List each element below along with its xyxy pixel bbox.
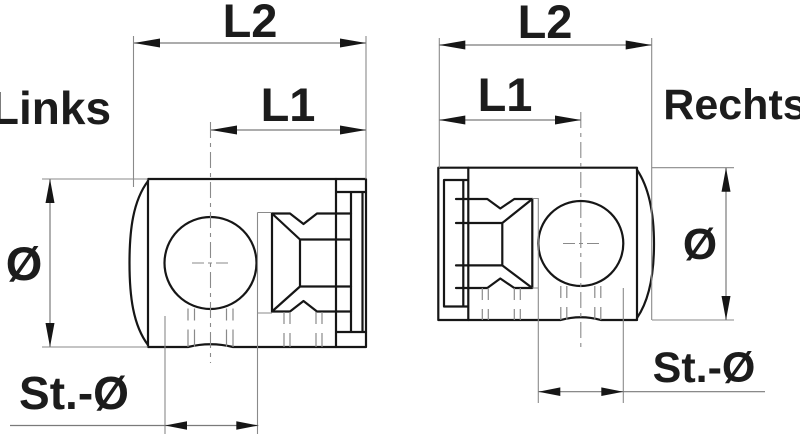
right-hole-below-recess (482, 288, 520, 320)
drawing-svg: L2 L1 Ø St.-Ø Links (0, 0, 800, 436)
technical-drawing-canvas: L2 L1 Ø St.-Ø Links (0, 0, 800, 436)
dim-label-l1-left: L1 (261, 78, 316, 131)
diameter-symbol-right: Ø (683, 220, 717, 269)
rod-diameter-label-right: St.-Ø (653, 344, 756, 392)
left-recess-tangent (258, 213, 273, 314)
right-dimensions: L2 L1 Ø St.-Ø (439, 0, 765, 403)
dim-label-l1-right: L1 (478, 68, 533, 121)
left-slot-lines (336, 179, 366, 347)
rod-diameter-label-left: St.-Ø (19, 367, 129, 419)
left-barrel-arc (130, 181, 149, 345)
diameter-symbol-left: Ø (6, 237, 43, 290)
right-view (438, 112, 654, 352)
left-hole-below-recess (284, 312, 322, 347)
dim-label-l2-left: L2 (223, 0, 278, 47)
right-slot-lines (444, 168, 468, 320)
dim-label-l2-right: L2 (518, 0, 573, 48)
view-label-rechts: Rechts (663, 81, 800, 129)
view-label-links: Links (0, 82, 111, 134)
left-nut-recess (272, 214, 351, 312)
